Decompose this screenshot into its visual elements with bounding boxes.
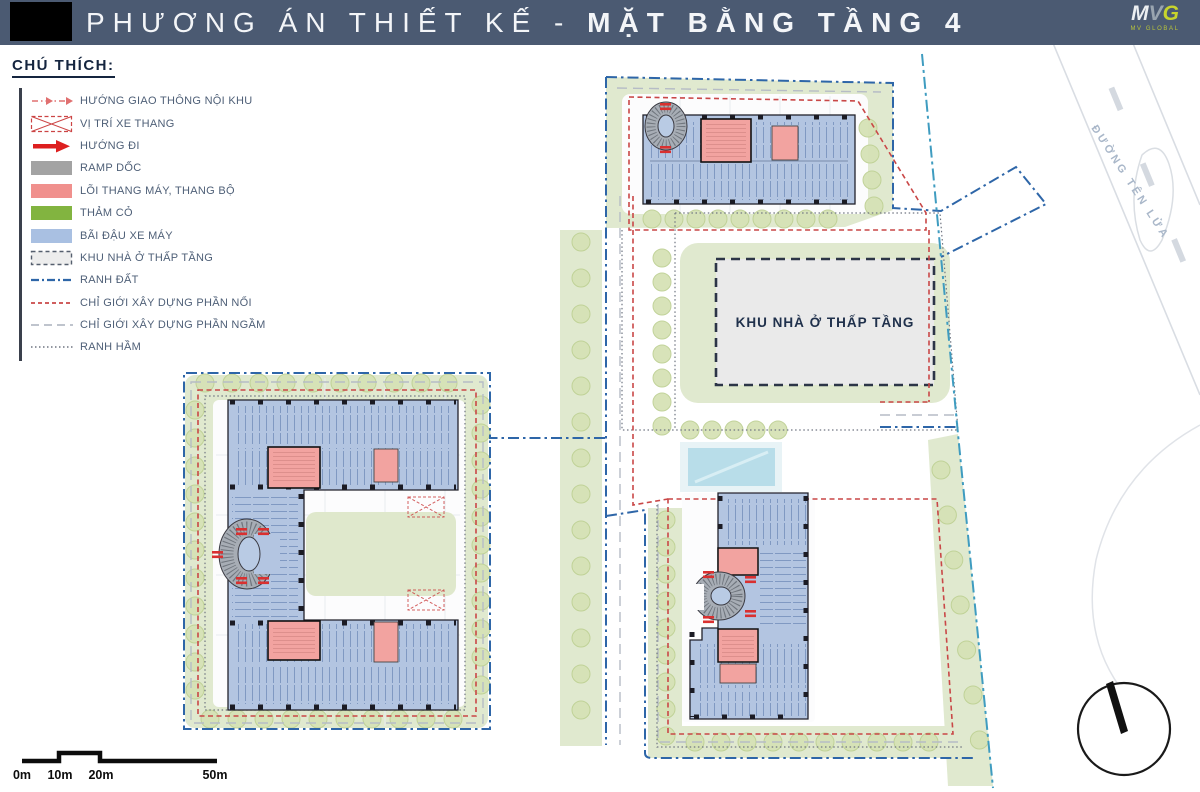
entry-mark [745,576,756,579]
entry-mark [745,615,756,618]
vi-tri-xe-thang-symbol [22,115,80,133]
legend-rows: HƯỚNG GIAO THÔNG NỘI KHUVỊ TRÍ XE THANGH… [19,88,310,361]
sheet-title-emphasis: MẶT BẰNG TẦNG 4 [587,7,968,38]
scale-bar: 0m 10m 20m 50m [13,753,228,782]
swimming-pool [680,442,782,492]
legend-item-label: CHỈ GIỚI XÂY DỰNG PHẦN NGẦM [80,319,266,331]
tree [572,485,590,503]
entry-mark [258,533,269,536]
tree [653,417,671,435]
tree [186,541,204,559]
legend-item-ramp-doc: RAMP DỐC [22,157,310,179]
entry-mark [236,528,247,531]
road-center-dashes [1080,12,1200,302]
legend-item-label: BÃI ĐẬU XE MÁY [80,230,173,242]
tree [865,197,883,215]
legend-item-label: RAMP DỐC [80,162,141,174]
tree [657,538,675,556]
logo-mark: MVG [1131,2,1179,25]
tree [657,619,675,637]
tree [390,710,408,728]
tree [472,508,490,526]
tree [472,620,490,638]
tree [186,401,204,419]
legend-item-label: CHỈ GIỚI XÂY DỰNG PHẦN NỔI [80,297,252,309]
tree [653,297,671,315]
tree [472,536,490,554]
tree [945,551,963,569]
tree [958,641,976,659]
tree [572,341,590,359]
tree [336,710,354,728]
tree [417,710,435,728]
tree [472,564,490,582]
tree [472,480,490,498]
tree [444,710,462,728]
tree [657,592,675,610]
legend-item-label: HƯỚNG ĐI [80,140,140,152]
tree [186,457,204,475]
scale-label-20: 20m [88,768,113,782]
tree [363,710,381,728]
legend-item-ranh-dat: RANH ĐẤT [22,269,310,291]
legend-item-label: HƯỚNG GIAO THÔNG NỘI KHU [80,95,253,107]
legend-item-tham-co: THẢM CỎ [22,202,310,224]
legend-item-label: RANH ĐẤT [80,274,139,286]
entry-mark [660,108,671,111]
tree [932,461,950,479]
tree [653,393,671,411]
legend-item-label: VỊ TRÍ XE THANG [80,118,175,130]
ramp-doc-symbol [22,160,80,176]
legend-item-label: THẢM CỎ [80,207,133,219]
tree [472,648,490,666]
entry-mark [703,571,714,574]
legend-item-khu-nha-o-thap-tang: KHU NHÀ Ở THẤP TẦNG [22,247,310,269]
scale-label-50: 50m [202,768,227,782]
entry-mark [745,610,756,613]
tree [653,321,671,339]
logo-subtext: MV GLOBAL [1120,26,1190,32]
tree [951,596,969,614]
entry-mark [236,582,247,585]
tree [572,629,590,647]
entry-mark [212,556,223,559]
north-compass [1078,681,1170,775]
entry-mark [212,551,223,554]
khu-nha-o-thap-tang-symbol [22,250,80,266]
tree [653,345,671,363]
tree [186,681,204,699]
ranh-ham-symbol [22,342,80,352]
tree [572,305,590,323]
legend-item-huong-giao-thong-noi-khu: HƯỚNG GIAO THÔNG NỘI KHU [22,90,310,112]
scale-label-0: 0m [13,768,31,782]
tree [572,557,590,575]
entry-mark [258,528,269,531]
entry-mark [258,582,269,585]
tree [572,665,590,683]
tree [472,676,490,694]
tree [797,210,815,228]
tree [643,210,661,228]
tham-co-symbol [22,205,80,221]
legend-item-chi-gioi-xay-dung-phan-noi: CHỈ GIỚI XÂY DỰNG PHẦN NỔI [22,292,310,314]
legend-item-label: RANH HẦM [80,341,141,353]
legend-item-label: LÕI THANG MÁY, THANG BỘ [80,185,235,197]
tree [201,710,219,728]
tree [653,273,671,291]
courtyard-grass [306,512,456,596]
scale-label-10: 10m [47,768,72,782]
tree [657,565,675,583]
huong-giao-thong-noi-khu-symbol [22,94,80,108]
tree [255,710,273,728]
tree [186,597,204,615]
tree [186,569,204,587]
ranh-dat-symbol [22,275,80,285]
core-stair-lift [374,449,398,482]
tree [572,449,590,467]
tree [859,119,877,137]
low-rise-housing-area: KHU NHÀ Ở THẤP TẦNG [716,259,934,385]
legend-item-loi-thang-may-thang-bo: LÕI THANG MÁY, THANG BỘ [22,180,310,202]
tree [572,413,590,431]
tree [938,506,956,524]
entry-mark [660,103,671,106]
tree [572,377,590,395]
company-logo: MVG MV GLOBAL [1120,3,1190,32]
tree [186,653,204,671]
core-stair-lift [718,548,758,575]
legend-item-label: KHU NHÀ Ở THẤP TẦNG [80,252,213,264]
legend-item-ranh-ham: RANH HẦM [22,336,310,358]
building-west-parking [219,400,458,710]
sheet-title: PHƯƠNG ÁN THIẾT KẾ - MẶT BẰNG TẦNG 4 [86,0,968,45]
entry-mark [745,581,756,584]
site-plan-sheet: { "title": { "prefix": "PHƯƠNG ÁN THIẾT … [0,0,1200,792]
tree [186,485,204,503]
road-ten-lua: ĐƯỜNG TÊN LỬA [1035,0,1200,702]
tree [970,731,988,749]
legend-item-bai-dau-xe-may: BÃI ĐẬU XE MÁY [22,224,310,246]
entry-mark [660,151,671,154]
tree [186,513,204,531]
tree [657,646,675,664]
tree [964,686,982,704]
legend-item-vi-tri-xe-thang: VỊ TRÍ XE THANG [22,112,310,134]
tree [472,452,490,470]
tree [861,145,879,163]
road-curve [1092,425,1200,702]
tree [282,710,300,728]
legend-heading: CHÚ THÍCH: [12,57,115,78]
chi-gioi-xay-dung-phan-ngam-symbol [22,320,80,330]
sheet-title-prefix: PHƯƠNG ÁN THIẾT KẾ - [86,7,587,38]
tree [472,424,490,442]
chi-gioi-xay-dung-phan-noi-symbol [22,298,80,308]
core-stair-lift [720,664,756,683]
core-stair-lift [374,622,398,662]
tree [657,511,675,529]
road-label: ĐƯỜNG TÊN LỬA [1088,123,1172,242]
tree [572,701,590,719]
tree [186,429,204,447]
entry-mark [703,621,714,624]
legend-item-huong-di: HƯỚNG ĐI [22,135,310,157]
tree [653,369,671,387]
entry-mark [236,533,247,536]
tree [572,593,590,611]
tree [863,171,881,189]
title-bar: PHƯƠNG ÁN THIẾT KẾ - MẶT BẰNG TẦNG 4 MVG… [0,0,1200,45]
tree [657,700,675,718]
core-stair-lift [772,126,798,160]
tree [572,233,590,251]
building-north-parking [643,102,855,204]
tree [572,521,590,539]
huong-di-symbol [22,139,80,153]
entry-mark [236,577,247,580]
entry-mark [258,577,269,580]
legend-item-chi-gioi-xay-dung-phan-ngam: CHỈ GIỚI XÂY DỰNG PHẦN NGẦM [22,314,310,336]
entry-mark [703,576,714,579]
entry-mark [660,146,671,149]
title-bar-black-block [10,2,72,41]
tree [657,673,675,691]
tree [653,249,671,267]
tree [472,592,490,610]
tree [186,625,204,643]
entry-mark [703,616,714,619]
low-rise-label: KHU NHÀ Ở THẤP TẦNG [736,315,915,330]
bai-dau-xe-may-symbol [22,228,80,244]
tree [472,396,490,414]
legend: CHÚ THÍCH: HƯỚNG GIAO THÔNG NỘI KHUVỊ TR… [10,57,310,361]
tree [572,269,590,287]
tree [309,710,327,728]
loi-thang-may-thang-bo-symbol [22,183,80,199]
tree [228,710,246,728]
